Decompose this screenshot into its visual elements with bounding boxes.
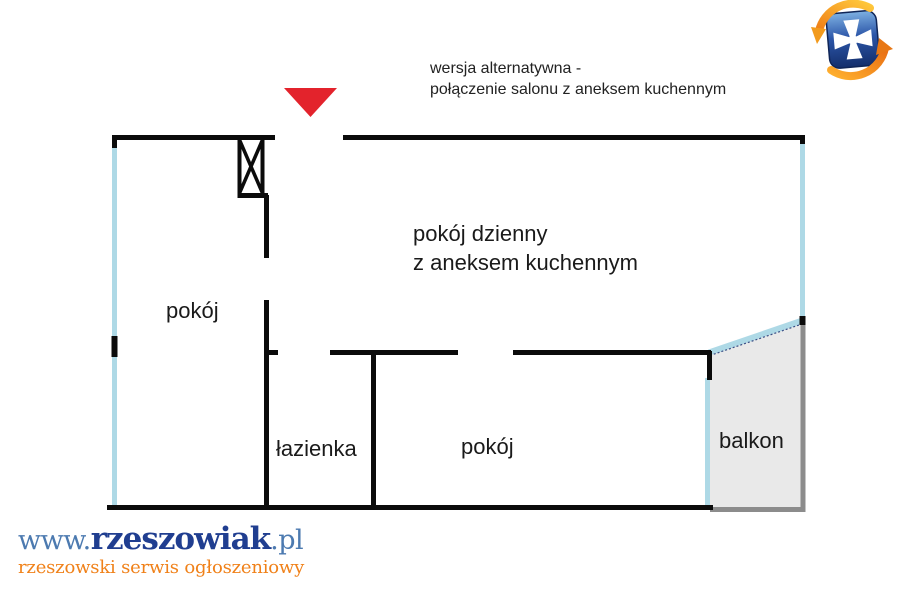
entrance-arrow-icon <box>284 88 337 117</box>
url-tld: .pl <box>270 525 303 556</box>
living-label-line1: pokój dzienny <box>413 219 638 248</box>
room-label-left: pokój <box>166 296 219 325</box>
site-branding: www.rzeszowiak.pl rzeszowski serwis ogło… <box>18 521 304 578</box>
room-label-bottom: pokój <box>461 432 514 461</box>
shaft-symbol-icon <box>238 139 269 196</box>
room-label-balcony: balkon <box>719 426 784 455</box>
annotation-line1: wersja alternatywna - <box>430 58 726 79</box>
floor-plan-page: wersja alternatywna - połączenie salonu … <box>0 0 900 593</box>
room-label-bathroom: łazienka <box>276 434 357 463</box>
rzeszow-crest-logo <box>810 0 894 84</box>
site-tagline: rzeszowski serwis ogłoszeniowy <box>18 557 304 578</box>
url-name: rzeszowiak <box>91 521 270 557</box>
url-www: www. <box>18 525 91 556</box>
annotation-line2: połączenie salonu z aneksem kuchennym <box>430 79 726 100</box>
living-label-line2: z aneksem kuchennym <box>413 248 638 277</box>
crest-shield <box>826 10 881 69</box>
room-label-living: pokój dzienny z aneksem kuchennym <box>413 219 638 277</box>
site-url: www.rzeszowiak.pl <box>18 521 304 557</box>
plan-annotation: wersja alternatywna - połączenie salonu … <box>430 58 726 100</box>
